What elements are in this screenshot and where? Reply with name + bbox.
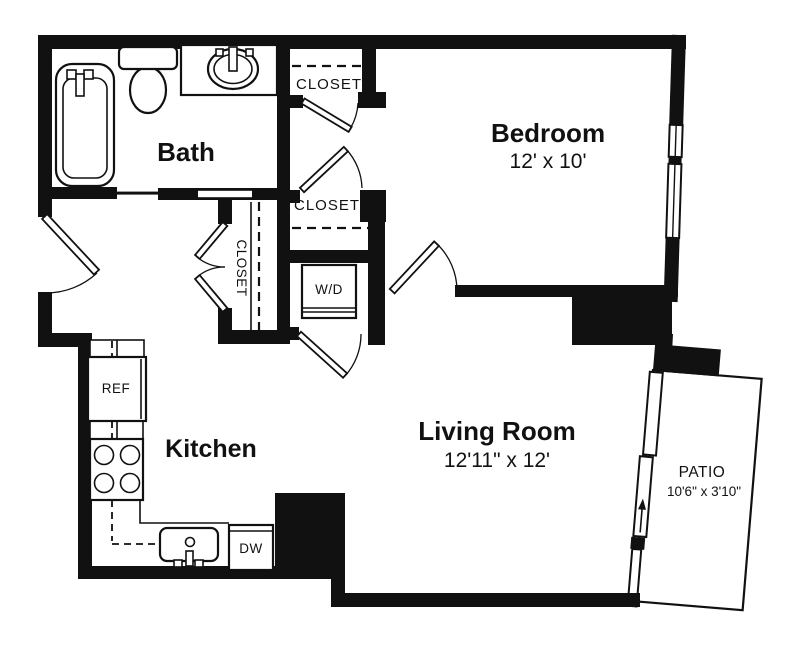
wall-topcloset-right [362,49,376,95]
wall-block-right-of-dw [275,493,345,579]
sink-faucet [229,47,237,71]
wall-wd-top [277,250,377,263]
wall-step [331,578,345,607]
wall-stub [358,92,386,108]
floorplan-drawing: Bath Bedroom 12' x 10' Living Room 12'11… [0,0,800,648]
livingroom-label: Living Room [418,416,575,446]
tub-faucet-handle [84,70,93,79]
bathtub [56,64,114,186]
wall-closet-column-right [368,196,385,345]
dishwasher-label: DW [239,541,263,556]
wall-hallcloset-bottom [218,330,290,344]
bath-label: Bath [157,137,215,167]
wd-closet-door [297,332,361,378]
kitchen-faucet-handle [174,560,182,567]
patio-label: PATIO [679,464,726,481]
sink-handle [246,49,253,56]
hall-closet-double-doors [195,222,227,312]
bathroom-sink [181,45,277,95]
toilet [119,47,177,113]
wall-bath-south-left [48,187,117,199]
wall-livingroom-right-piece [655,334,673,372]
closet-middle-label: CLOSET [294,197,360,214]
kitchen-faucet-handle [195,560,203,567]
kitchen-label: Kitchen [165,435,257,463]
bedroom-right-wall [664,35,686,302]
entry-door [42,214,99,293]
burner [121,474,140,493]
burner [95,446,114,465]
kitchen-sink [160,528,218,567]
stove [90,439,143,500]
livingroom-dimensions: 12'11" x 12' [444,449,550,472]
wall-stub [277,95,303,108]
tub-faucet-spout [76,74,84,96]
wall-right-lower [664,238,680,302]
kitchen-faucet [186,551,193,566]
washer-dryer-label: W/D [315,282,343,297]
wall-livingroom-bottom [345,593,640,607]
patio-dimensions: 10'6" x 3'10" [667,484,741,499]
wall-hallcloset-stub-top [218,197,232,224]
sink-handle [216,49,223,56]
bedroom-dimensions: 12' x 10' [510,150,587,173]
closet-hall-label: CLOSET [234,239,249,296]
closet-top-door [301,98,358,131]
bedroom-door [390,241,457,293]
burner [121,446,140,465]
wall-right-upper [669,35,686,125]
floorplan-page: Bath Bedroom 12' x 10' Living Room 12'11… [0,0,800,648]
bedroom-label: Bedroom [491,118,605,148]
burner [95,474,114,493]
closet-middle-door [300,147,362,192]
closet-top-label: CLOSET [296,76,362,93]
tub-faucet-handle [67,70,76,79]
refrigerator-label: REF [102,381,131,396]
